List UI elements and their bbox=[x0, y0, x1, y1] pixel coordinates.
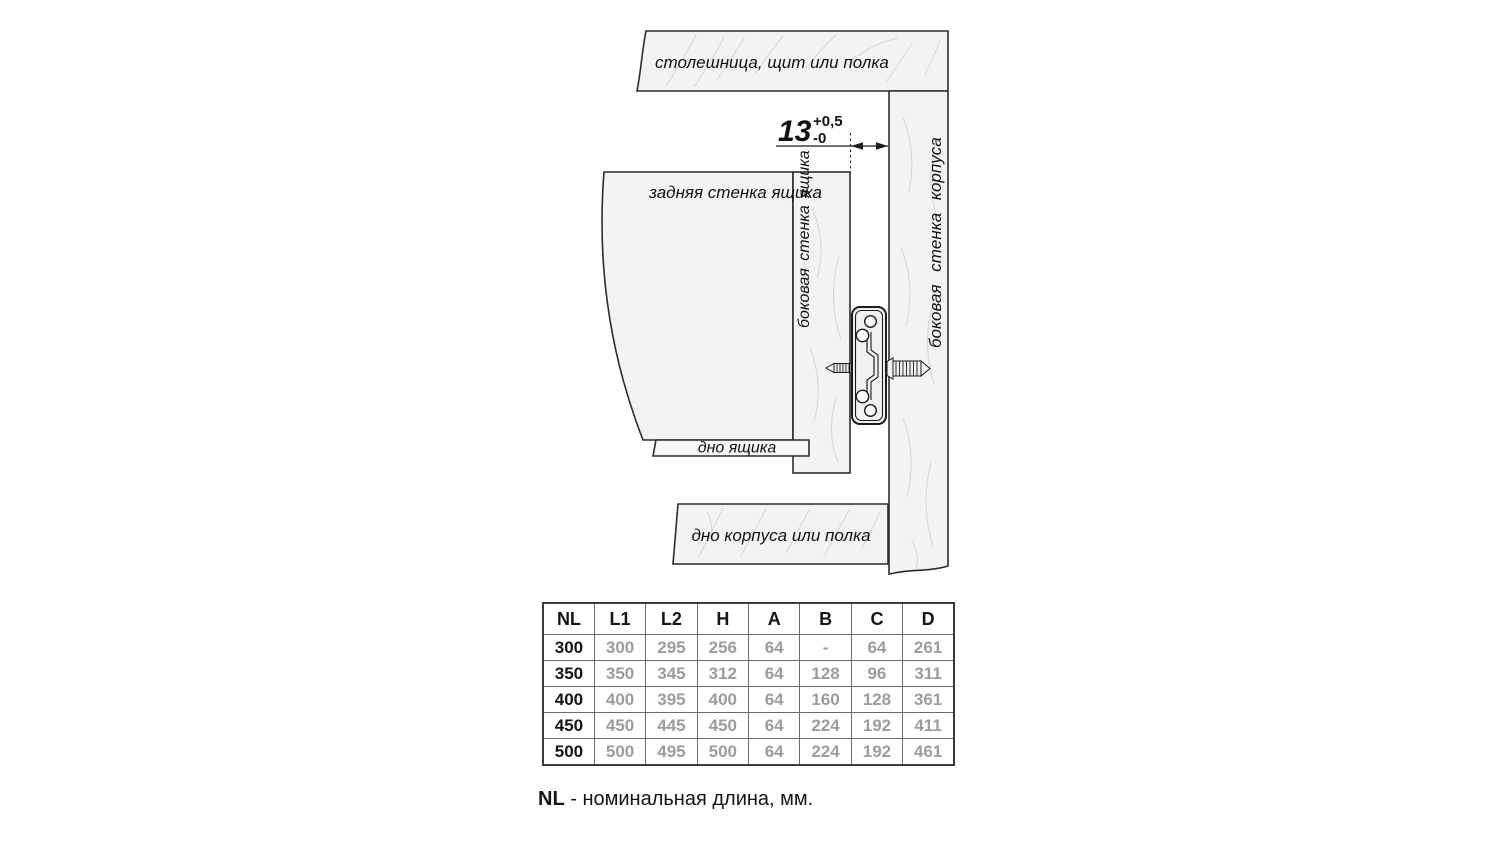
table-cell: 192 bbox=[851, 713, 902, 739]
table-cell: 350 bbox=[594, 661, 645, 687]
table-header-L2: L2 bbox=[646, 603, 697, 635]
table-cell: 128 bbox=[800, 661, 851, 687]
table-cell: 64 bbox=[749, 739, 800, 766]
table-cell: 450 bbox=[697, 713, 748, 739]
table-cell: 361 bbox=[903, 687, 954, 713]
table-row: 3503503453126412896311 bbox=[543, 661, 954, 687]
table-header-C: C bbox=[851, 603, 902, 635]
cabinet-bottom-label: дно корпуса или полка bbox=[691, 526, 870, 545]
dimension-tolerance-minus: -0 bbox=[813, 130, 826, 147]
dimension-13: 13 +0,5 -0 bbox=[776, 113, 888, 172]
table-cell: 400 bbox=[543, 687, 594, 713]
table-cell: 224 bbox=[800, 713, 851, 739]
table-cell: 500 bbox=[697, 739, 748, 766]
drawer-bottom-label: дно ящика bbox=[698, 440, 777, 457]
table-cell: 261 bbox=[903, 635, 954, 661]
cabinet-side-wall-label: боковая стенка корпуса bbox=[926, 137, 945, 348]
dimension-value: 13 bbox=[778, 115, 812, 148]
table-header-A: A bbox=[749, 603, 800, 635]
dimensions-table: NLL1L2HABCD 30030029525664-6426135035034… bbox=[542, 602, 955, 766]
table-cell: 295 bbox=[646, 635, 697, 661]
table-header-B: B bbox=[800, 603, 851, 635]
table-cell: 96 bbox=[851, 661, 902, 687]
table-cell: 64 bbox=[749, 687, 800, 713]
table-cell: 160 bbox=[800, 687, 851, 713]
table-header-D: D bbox=[903, 603, 954, 635]
table-cell: 350 bbox=[543, 661, 594, 687]
table-row: 40040039540064160128361 bbox=[543, 687, 954, 713]
table-caption: NL - номинальная длина, мм. bbox=[538, 788, 813, 811]
top-panel-label: столешница, щит или полка bbox=[655, 53, 889, 72]
arrowhead-left bbox=[851, 142, 863, 150]
table-cell: 256 bbox=[697, 635, 748, 661]
table-cell: 224 bbox=[800, 739, 851, 766]
table-cell: 311 bbox=[903, 661, 954, 687]
table-row: 50050049550064224192461 bbox=[543, 739, 954, 766]
table-header-L1: L1 bbox=[594, 603, 645, 635]
table-row: 45045044545064224192411 bbox=[543, 713, 954, 739]
table-cell: 64 bbox=[749, 661, 800, 687]
table-cell: 300 bbox=[543, 635, 594, 661]
table-cell: 400 bbox=[594, 687, 645, 713]
page: 13 +0,5 -0 столешница, щит или полка зад… bbox=[0, 0, 1500, 844]
table-header-NL: NL bbox=[543, 603, 594, 635]
table-cell: 450 bbox=[594, 713, 645, 739]
panels bbox=[602, 31, 948, 574]
table-cell: 300 bbox=[594, 635, 645, 661]
table-cell: 461 bbox=[903, 739, 954, 766]
table-cell: 450 bbox=[543, 713, 594, 739]
table-cell: 445 bbox=[646, 713, 697, 739]
table-cell: 395 bbox=[646, 687, 697, 713]
caption-text: - номинальная длина, мм. bbox=[565, 788, 814, 810]
table-cell: - bbox=[800, 635, 851, 661]
table-cell: 64 bbox=[749, 635, 800, 661]
table-cell: 64 bbox=[749, 713, 800, 739]
arrowhead-right bbox=[876, 142, 888, 150]
caption-term: NL bbox=[538, 788, 565, 810]
drawer-side-wall-label: боковая стенка ящика bbox=[796, 150, 813, 328]
table-header-H: H bbox=[697, 603, 748, 635]
table-row: 30030029525664-64261 bbox=[543, 635, 954, 661]
table-cell: 411 bbox=[903, 713, 954, 739]
table-cell: 312 bbox=[697, 661, 748, 687]
table-cell: 345 bbox=[646, 661, 697, 687]
table-header-row: NLL1L2HABCD bbox=[543, 603, 954, 635]
table-cell: 400 bbox=[697, 687, 748, 713]
table-cell: 500 bbox=[543, 739, 594, 766]
table-cell: 128 bbox=[851, 687, 902, 713]
table-cell: 495 bbox=[646, 739, 697, 766]
table-cell: 500 bbox=[594, 739, 645, 766]
dimension-tolerance-plus: +0,5 bbox=[813, 113, 843, 130]
table-cell: 64 bbox=[851, 635, 902, 661]
table-cell: 192 bbox=[851, 739, 902, 766]
back-wall-panel bbox=[602, 172, 793, 440]
